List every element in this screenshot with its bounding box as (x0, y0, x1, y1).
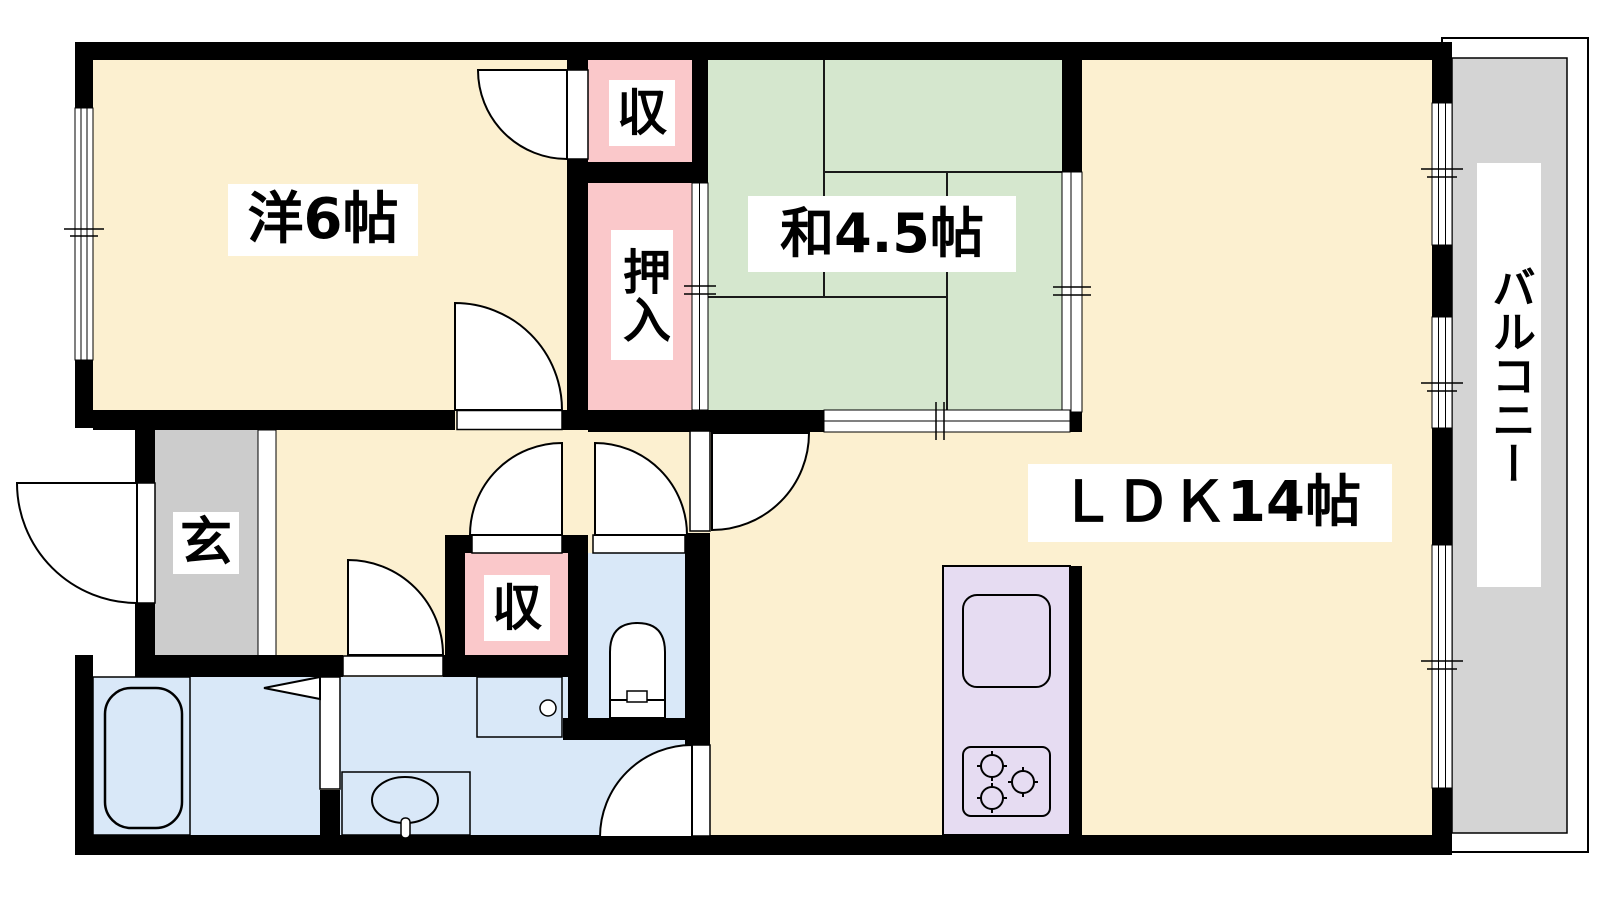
room-label-japanese: 和4.5帖 (748, 196, 1016, 272)
room-label-oshiire: 押入 (611, 230, 673, 360)
room-label-closet-hall: 収 (484, 575, 550, 641)
room-label-western: 洋6帖 (228, 184, 418, 256)
toilet (610, 623, 665, 718)
bathroom-floor (93, 677, 320, 835)
room-label-balcony: バルコニー (1477, 163, 1541, 587)
door-washroom (343, 656, 443, 676)
floor-plan: 洋6帖 和4.5帖 ＬＤＫ14帖 バルコニー 玄 収 押入 収 (0, 0, 1600, 900)
door-bathroom (320, 677, 340, 789)
door-washroom-ldk (691, 745, 710, 836)
door-toilet (593, 535, 685, 553)
room-label-closet-upper: 収 (609, 80, 675, 146)
kitchen-counter (943, 566, 1070, 835)
door-ldk (690, 431, 710, 531)
entrance-step (258, 430, 276, 657)
room-label-ldk: ＬＤＫ14帖 (1028, 464, 1392, 542)
room-label-entrance: 玄 (173, 512, 239, 574)
door-western-room (457, 411, 562, 430)
door-closet-upper (567, 70, 588, 159)
pan-drain (540, 700, 556, 716)
washbasin-faucet (401, 818, 410, 838)
door-arc-entrance (17, 483, 137, 603)
door-entrance (137, 483, 155, 603)
door-closet-hall (472, 535, 562, 553)
floor-plan-drawing (0, 0, 1600, 900)
